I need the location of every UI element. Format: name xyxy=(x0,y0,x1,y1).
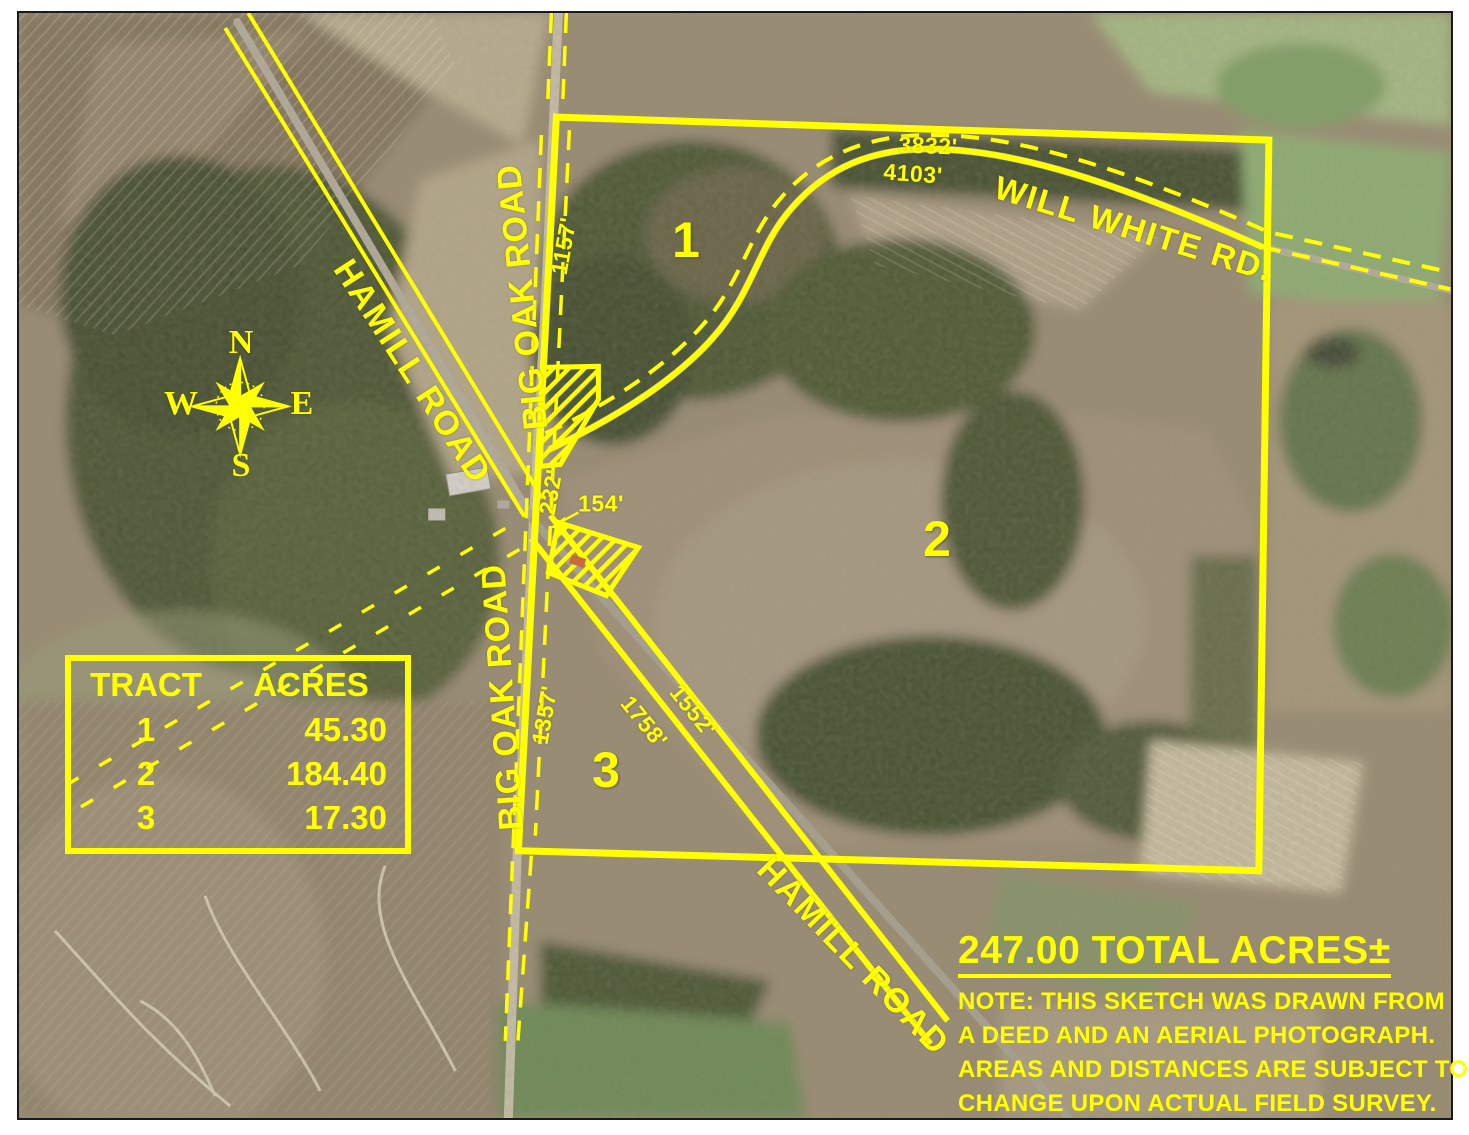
photo-grain xyxy=(19,13,1451,1118)
survey-sketch-page: HAMILL ROAD BIG OAK ROAD BIG OAK ROAD WI… xyxy=(0,0,1469,1135)
aerial-photo-svg xyxy=(19,13,1451,1118)
aerial-photo xyxy=(17,11,1453,1120)
